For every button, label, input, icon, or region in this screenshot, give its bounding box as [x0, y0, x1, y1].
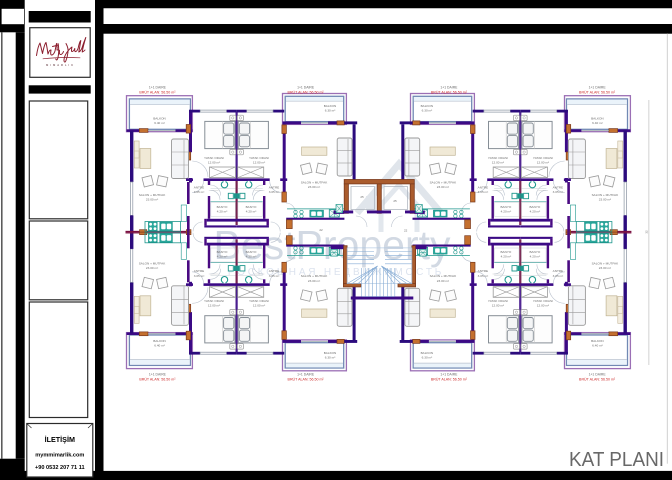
- svg-text:22: 22: [319, 228, 323, 232]
- svg-text:ANTRE: ANTRE: [269, 269, 280, 273]
- svg-text:SALON + MUTFAK: SALON + MUTFAK: [301, 181, 328, 185]
- svg-text:3.05 m²: 3.05 m²: [553, 274, 564, 278]
- svg-text:BRÜT ALAN: 56.50 m²: BRÜT ALAN: 56.50 m²: [139, 377, 176, 381]
- svg-text:6.30 m²: 6.30 m²: [422, 356, 433, 360]
- svg-text:25: 25: [360, 195, 364, 199]
- svg-text:4.20 m²: 4.20 m²: [530, 209, 541, 213]
- svg-text:6.40 m²: 6.40 m²: [592, 344, 603, 348]
- svg-text:BALKON: BALKON: [421, 351, 434, 355]
- svg-text:BALKON: BALKON: [324, 104, 337, 108]
- svg-text:6.40 m²: 6.40 m²: [154, 121, 165, 125]
- svg-text:23.00 m²: 23.00 m²: [146, 266, 158, 270]
- svg-text:23.00 m²: 23.00 m²: [308, 185, 320, 189]
- svg-text:6.40 m²: 6.40 m²: [154, 344, 165, 348]
- svg-text:4.20 m²: 4.20 m²: [246, 209, 257, 213]
- svg-text:1+1 DAIRE: 1+1 DAIRE: [589, 85, 607, 89]
- svg-text:1+1 DAIRE: 1+1 DAIRE: [440, 85, 458, 89]
- svg-text:YATAK ODASI: YATAK ODASI: [488, 156, 508, 160]
- svg-text:4.20 m²: 4.20 m²: [217, 209, 228, 213]
- svg-text:6.30 m²: 6.30 m²: [422, 108, 433, 112]
- svg-text:SALON + MUTFAK: SALON + MUTFAK: [592, 193, 619, 197]
- svg-text:mymmimarlik.com: mymmimarlik.com: [35, 453, 84, 459]
- svg-text:YATAK ODASI: YATAK ODASI: [533, 299, 553, 303]
- svg-text:12.00 m²: 12.00 m²: [208, 160, 220, 164]
- svg-text:BALKON: BALKON: [153, 339, 166, 343]
- svg-text:23.00 m²: 23.00 m²: [599, 198, 611, 202]
- svg-text:ANTRE: ANTRE: [553, 186, 564, 190]
- svg-text:6.30 m²: 6.30 m²: [325, 108, 336, 112]
- svg-text:YATAK ODASI: YATAK ODASI: [488, 299, 508, 303]
- svg-text:4.20 m²: 4.20 m²: [501, 255, 512, 259]
- svg-text:3.05 m²: 3.05 m²: [269, 190, 280, 194]
- svg-text:32: 32: [645, 230, 649, 234]
- svg-text:BRÜT ALAN: 56.50 m²: BRÜT ALAN: 56.50 m²: [431, 377, 468, 381]
- svg-text:3.05 m²: 3.05 m²: [269, 274, 280, 278]
- svg-text:3.05 m²: 3.05 m²: [553, 190, 564, 194]
- svg-text:BRÜT ALAN: 56.50 m²: BRÜT ALAN: 56.50 m²: [579, 377, 616, 381]
- svg-text:3.05 m²: 3.05 m²: [194, 274, 205, 278]
- svg-text:23.00 m²: 23.00 m²: [437, 185, 449, 189]
- svg-text:ANTRE: ANTRE: [478, 269, 489, 273]
- svg-text:ANTRE: ANTRE: [194, 186, 205, 190]
- svg-text:BALKON: BALKON: [591, 117, 604, 121]
- svg-text:ANTRE: ANTRE: [553, 269, 564, 273]
- svg-text:6.40 m²: 6.40 m²: [592, 121, 603, 125]
- svg-text:4.20 m²: 4.20 m²: [530, 255, 541, 259]
- svg-text:BRÜT ALAN: 56.50 m²: BRÜT ALAN: 56.50 m²: [431, 90, 468, 94]
- svg-text:1+1 DAIRE: 1+1 DAIRE: [149, 85, 167, 89]
- svg-text:3.05 m²: 3.05 m²: [194, 190, 205, 194]
- svg-text:SALON + MUTFAK: SALON + MUTFAK: [139, 262, 166, 266]
- svg-text:3.05 m²: 3.05 m²: [478, 190, 489, 194]
- svg-text:12.00 m²: 12.00 m²: [537, 303, 549, 307]
- svg-text:BANYO: BANYO: [529, 205, 540, 209]
- svg-text:23.00 m²: 23.00 m²: [437, 279, 449, 283]
- svg-text:23.00 m²: 23.00 m²: [599, 266, 611, 270]
- svg-text:KAT PLANI: KAT PLANI: [569, 449, 664, 471]
- svg-text:BANYO: BANYO: [500, 250, 511, 254]
- svg-text:YATAK ODASI: YATAK ODASI: [249, 299, 269, 303]
- svg-text:12.00 m²: 12.00 m²: [492, 160, 504, 164]
- svg-text:12.00 m²: 12.00 m²: [492, 303, 504, 307]
- svg-text:BANYO: BANYO: [217, 205, 228, 209]
- svg-text:4.20 m²: 4.20 m²: [246, 255, 257, 259]
- svg-text:BANYO: BANYO: [246, 250, 257, 254]
- svg-text:MIMARLIK: MIMARLIK: [46, 63, 75, 67]
- svg-text:12.00 m²: 12.00 m²: [537, 160, 549, 164]
- svg-text:4.20 m²: 4.20 m²: [501, 209, 512, 213]
- svg-text:12.00 m²: 12.00 m²: [253, 303, 265, 307]
- svg-text:1+1 DAIRE: 1+1 DAIRE: [297, 85, 315, 89]
- svg-text:BRÜT ALAN: 56.50 m²: BRÜT ALAN: 56.50 m²: [288, 377, 325, 381]
- svg-text:BRÜT ALAN: 56.50 m²: BRÜT ALAN: 56.50 m²: [139, 90, 176, 94]
- svg-text:İLETİŞİM: İLETİŞİM: [45, 435, 75, 444]
- svg-text:YATAK ODASI: YATAK ODASI: [533, 156, 553, 160]
- svg-text:ANTRE: ANTRE: [269, 186, 280, 190]
- svg-text:12.00 m²: 12.00 m²: [208, 303, 220, 307]
- svg-text:23.00 m²: 23.00 m²: [308, 279, 320, 283]
- svg-text:ANTRE: ANTRE: [194, 269, 205, 273]
- svg-text:BALKON: BALKON: [153, 117, 166, 121]
- svg-text:1+1 DAIRE: 1+1 DAIRE: [440, 372, 458, 376]
- svg-text:BALKON: BALKON: [324, 351, 337, 355]
- svg-text:BRÜT ALAN: 56.50 m²: BRÜT ALAN: 56.50 m²: [579, 90, 616, 94]
- svg-text:BRÜT ALAN: 56.50 m²: BRÜT ALAN: 56.50 m²: [288, 90, 325, 94]
- svg-text:23.00 m²: 23.00 m²: [146, 198, 158, 202]
- svg-text:BANYO: BANYO: [217, 250, 228, 254]
- svg-text:1+1 DAIRE: 1+1 DAIRE: [297, 372, 315, 376]
- svg-text:6.30 m²: 6.30 m²: [325, 356, 336, 360]
- svg-text:BALKON: BALKON: [421, 104, 434, 108]
- svg-text:+90 0532 207 71 11: +90 0532 207 71 11: [35, 465, 85, 471]
- svg-text:BANYO: BANYO: [246, 205, 257, 209]
- svg-text:1+1 DAIRE: 1+1 DAIRE: [589, 372, 607, 376]
- svg-text:YATAK ODASI: YATAK ODASI: [249, 156, 269, 160]
- svg-text:ANTRE: ANTRE: [478, 186, 489, 190]
- svg-text:12.00 m²: 12.00 m²: [253, 160, 265, 164]
- svg-text:SALON + MUTFAK: SALON + MUTFAK: [139, 193, 166, 197]
- svg-text:BANYO: BANYO: [529, 250, 540, 254]
- svg-text:22: 22: [404, 229, 408, 233]
- svg-text:BANYO: BANYO: [500, 205, 511, 209]
- svg-text:SALON + MUTFAK: SALON + MUTFAK: [301, 274, 328, 278]
- svg-text:1+1 DAIRE: 1+1 DAIRE: [149, 372, 167, 376]
- svg-text:3.05 m²: 3.05 m²: [478, 274, 489, 278]
- svg-text:YATAK ODASI: YATAK ODASI: [204, 156, 224, 160]
- svg-text:SALON + MUTFAK: SALON + MUTFAK: [430, 274, 457, 278]
- svg-text:4.20 m²: 4.20 m²: [217, 255, 228, 259]
- svg-text:SALON + MUTFAK: SALON + MUTFAK: [592, 262, 619, 266]
- svg-text:SALON + MUTFAK: SALON + MUTFAK: [430, 181, 457, 185]
- svg-text:YATAK ODASI: YATAK ODASI: [204, 299, 224, 303]
- svg-text:25: 25: [393, 199, 397, 203]
- svg-text:BALKON: BALKON: [591, 339, 604, 343]
